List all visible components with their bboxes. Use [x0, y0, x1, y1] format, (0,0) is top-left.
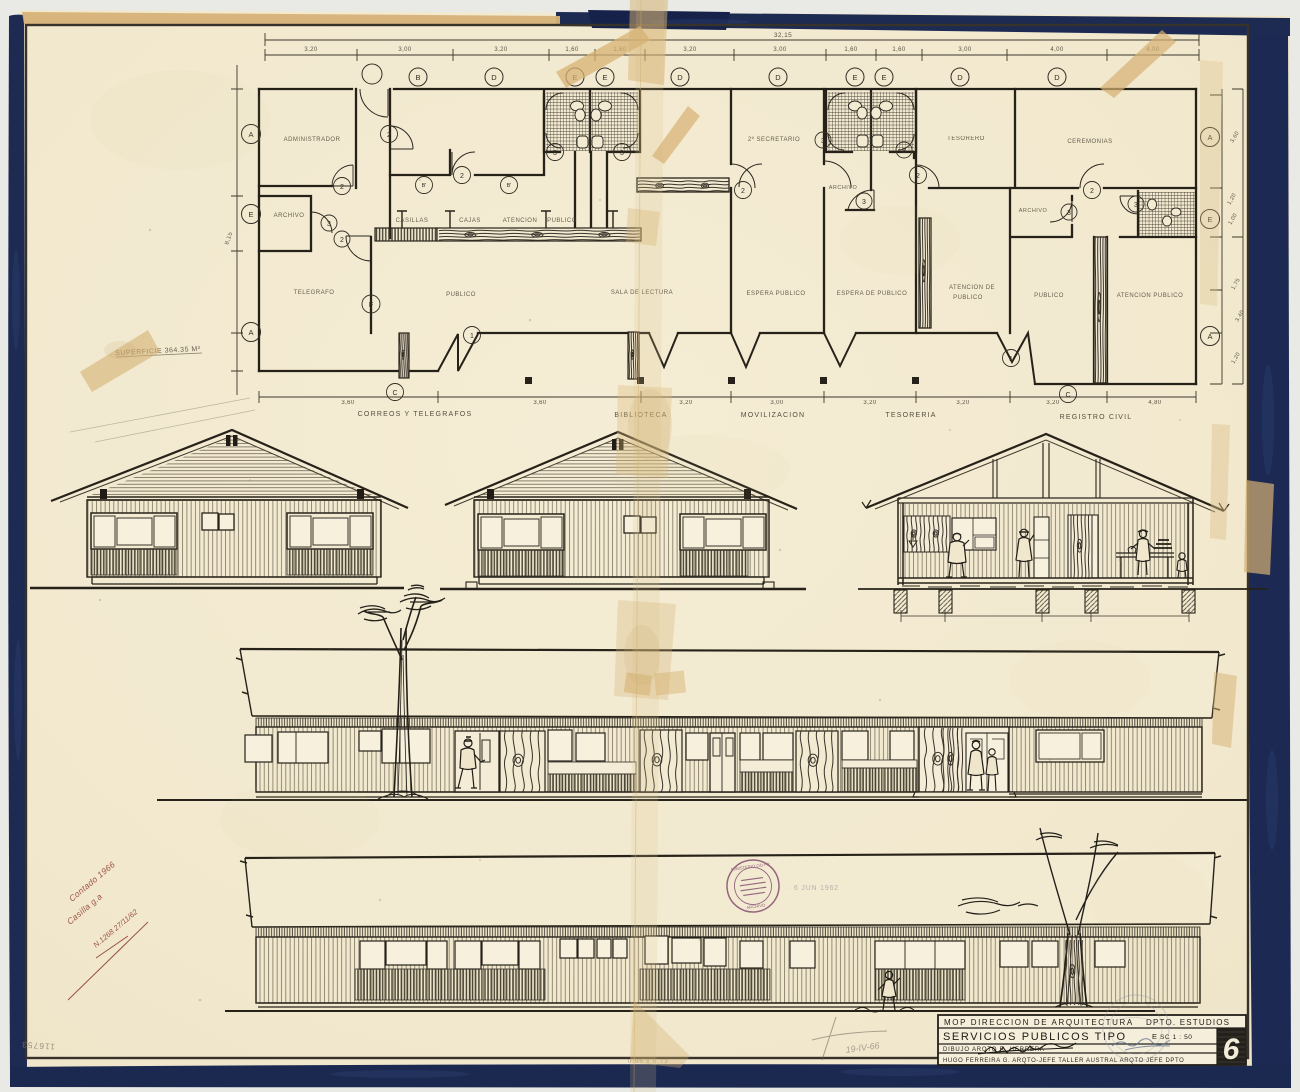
- svg-text:1,60: 1,60: [892, 47, 906, 53]
- svg-text:3,00: 3,00: [770, 400, 784, 406]
- svg-text:ARCHIVO: ARCHIVO: [274, 213, 305, 219]
- svg-text:3,20: 3,20: [494, 47, 508, 53]
- svg-text:3,00: 3,00: [398, 47, 412, 53]
- svg-text:C: C: [392, 390, 397, 397]
- svg-text:3: 3: [902, 148, 906, 155]
- svg-text:1: 1: [1009, 356, 1013, 363]
- svg-text:3,20: 3,20: [1046, 400, 1060, 406]
- svg-text:ESPERA PUBLICO: ESPERA PUBLICO: [746, 291, 805, 297]
- svg-text:3: 3: [1134, 202, 1138, 209]
- svg-text:3,20: 3,20: [863, 400, 877, 406]
- svg-text:3,60: 3,60: [533, 400, 547, 406]
- svg-text:32,15: 32,15: [774, 32, 792, 39]
- svg-text:E: E: [852, 73, 857, 82]
- svg-text:B': B': [507, 183, 512, 189]
- svg-text:ARCHIVO: ARCHIVO: [1019, 208, 1048, 214]
- svg-text:E: E: [1152, 1032, 1158, 1041]
- svg-text:CAJAS: CAJAS: [459, 218, 481, 224]
- svg-text:4,80: 4,80: [1148, 400, 1162, 406]
- svg-text:REGISTRO CIVIL: REGISTRO CIVIL: [1060, 414, 1133, 421]
- svg-text:3: 3: [327, 221, 331, 228]
- svg-text:CEREMONIAS: CEREMONIAS: [1067, 139, 1112, 145]
- svg-text:2º SECRETARIO: 2º SECRETARIO: [748, 136, 800, 143]
- svg-text:TELEGRAFO: TELEGRAFO: [294, 290, 335, 296]
- svg-text:E: E: [881, 73, 886, 82]
- svg-text:2: 2: [340, 237, 344, 244]
- svg-text:3: 3: [821, 138, 825, 145]
- svg-text:CORREOS Y TELEGRAFOS: CORREOS Y TELEGRAFOS: [358, 411, 473, 418]
- svg-text:CASILLAS: CASILLAS: [396, 218, 429, 224]
- svg-text:2: 2: [916, 173, 920, 180]
- svg-text:TESORERIA: TESORERIA: [885, 412, 936, 419]
- svg-text:SERVICIOS PUBLICOS TIPO: SERVICIOS PUBLICOS TIPO: [943, 1031, 1127, 1043]
- svg-text:PUBLICO: PUBLICO: [547, 218, 577, 224]
- svg-text:E: E: [602, 73, 607, 82]
- svg-text:3,00: 3,00: [773, 47, 787, 53]
- svg-text:1,60: 1,60: [844, 47, 858, 53]
- svg-text:B': B': [422, 183, 427, 189]
- svg-text:A: A: [248, 328, 253, 337]
- svg-text:2: 2: [1090, 188, 1094, 195]
- svg-text:DPTO. ESTUDIOS: DPTO. ESTUDIOS: [1146, 1018, 1230, 1027]
- svg-text:ARCHIVO: ARCHIVO: [829, 185, 858, 191]
- svg-text:TESORERO: TESORERO: [947, 136, 985, 142]
- svg-text:SC 1 : 50: SC 1 : 50: [1160, 1034, 1193, 1041]
- svg-text:3,20: 3,20: [683, 47, 697, 53]
- svg-text:PUBLICO: PUBLICO: [446, 292, 476, 298]
- svg-text:1,60: 1,60: [565, 47, 579, 53]
- svg-text:6: 6: [1223, 1033, 1240, 1066]
- svg-text:3: 3: [620, 150, 624, 157]
- svg-text:3: 3: [1067, 210, 1071, 217]
- svg-text:A: A: [1207, 332, 1212, 341]
- svg-text:2: 2: [741, 188, 745, 195]
- svg-text:2: 2: [387, 132, 391, 139]
- svg-text:3: 3: [553, 150, 557, 157]
- svg-text:ATENCION PUBLICO: ATENCION PUBLICO: [1117, 293, 1184, 299]
- svg-text:4,00: 4,00: [1050, 47, 1064, 53]
- svg-text:3,20: 3,20: [304, 47, 318, 53]
- svg-text:B: B: [415, 73, 420, 82]
- svg-text:D: D: [775, 73, 781, 82]
- svg-text:3,20: 3,20: [679, 400, 693, 406]
- svg-text:D: D: [491, 73, 497, 82]
- svg-text:3,00: 3,00: [958, 47, 972, 53]
- svg-text:E: E: [248, 210, 253, 219]
- svg-text:ESPERA DE PUBLICO: ESPERA DE PUBLICO: [837, 291, 908, 297]
- svg-text:3,60: 3,60: [341, 400, 355, 406]
- svg-text:D: D: [957, 73, 963, 82]
- svg-text:2: 2: [340, 184, 344, 191]
- svg-text:· 6 JUN 1962: · 6 JUN 1962: [788, 885, 839, 892]
- svg-text:PUBLICO: PUBLICO: [953, 295, 983, 301]
- svg-text:MOP DIRECCION DE ARQUITECTU: MOP DIRECCION DE ARQUITECTURA: [944, 1018, 1134, 1027]
- svg-text:MOVILIZACION: MOVILIZACION: [741, 412, 806, 419]
- svg-text:C: C: [1065, 392, 1070, 399]
- svg-text:D: D: [1054, 73, 1060, 82]
- svg-text:3: 3: [862, 199, 866, 206]
- svg-text:F: F: [369, 300, 374, 309]
- svg-text:ATENCION: ATENCION: [503, 218, 538, 224]
- svg-text:PUBLICO: PUBLICO: [1034, 293, 1064, 299]
- svg-text:ADMINISTRADOR: ADMINISTRADOR: [284, 137, 341, 143]
- svg-text:ATENCION DE: ATENCION DE: [949, 285, 995, 291]
- svg-text:1: 1: [470, 333, 474, 340]
- svg-text:2: 2: [460, 173, 464, 180]
- svg-text:D: D: [677, 73, 683, 82]
- svg-text:3,20: 3,20: [956, 400, 970, 406]
